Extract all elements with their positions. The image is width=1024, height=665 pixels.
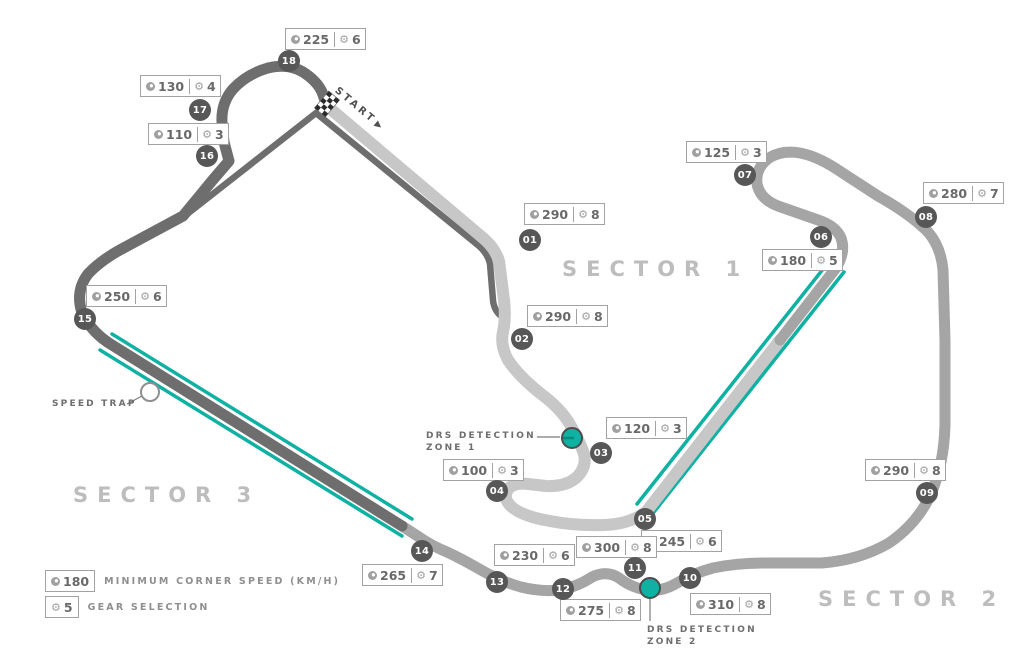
corner-number: 09 xyxy=(920,488,935,499)
corner-speed-cell: 310 xyxy=(691,597,739,612)
corner-gear-cell: ⚙ 7 xyxy=(972,186,1003,201)
gear-icon: ⚙ xyxy=(740,147,750,158)
corner-speed-cell: 230 xyxy=(495,548,543,563)
gear-icon: ⚙ xyxy=(695,536,705,547)
speed-gauge-icon xyxy=(582,543,591,552)
speed-gauge-icon xyxy=(530,210,539,219)
corner-gear-value: 8 xyxy=(591,207,600,222)
corner-gear-cell: ⚙ 6 xyxy=(543,548,574,563)
corner-badge: 05 xyxy=(634,508,656,530)
corner-speed-value: 125 xyxy=(704,145,730,160)
corner-number: 12 xyxy=(556,584,571,595)
corner-speed-value: 225 xyxy=(303,32,329,47)
corner-number: 07 xyxy=(738,170,753,181)
corner-speed-cell: 290 xyxy=(528,309,576,324)
corner-info-box: 100 ⚙ 3 xyxy=(443,459,524,481)
corner-gear-cell: ⚙ 3 xyxy=(492,463,523,478)
corner-gear-value: 3 xyxy=(215,127,224,142)
corner-badge: 02 xyxy=(511,328,533,350)
corner-gear-cell: ⚙ 3 xyxy=(197,127,228,142)
corner-speed-cell: 300 xyxy=(577,540,625,555)
corner-badge: 07 xyxy=(734,164,756,186)
corner-info-box: 300 ⚙ 8 xyxy=(576,536,657,558)
corner-speed-value: 300 xyxy=(594,540,620,555)
legend-speed-text: MINIMUM CORNER SPEED (KM/H) xyxy=(104,576,340,587)
corner-speed-cell: 250 xyxy=(87,289,135,304)
corner-speed-cell: 100 xyxy=(444,463,492,478)
corner-gear-value: 6 xyxy=(352,32,361,47)
speed-gauge-icon xyxy=(154,130,163,139)
corner-speed-cell: 180 xyxy=(763,253,811,268)
corner-badge: 16 xyxy=(196,145,218,167)
corner-gear-value: 6 xyxy=(153,289,162,304)
speed-gauge-icon xyxy=(291,35,300,44)
corner-speed-value: 100 xyxy=(461,463,487,478)
corner-gear-value: 8 xyxy=(757,597,766,612)
corner-gear-value: 8 xyxy=(643,540,652,555)
gear-icon: ⚙ xyxy=(660,423,670,434)
corner-info-box: 125 ⚙ 3 xyxy=(686,141,767,163)
legend-gear-text: GEAR SELECTION xyxy=(88,602,210,613)
corner-gear-value: 3 xyxy=(673,421,682,436)
corner-gear-value: 4 xyxy=(207,79,216,94)
legend-speed-row: 180 MINIMUM CORNER SPEED (KM/H) xyxy=(45,570,340,592)
corner-speed-value: 290 xyxy=(883,463,909,478)
corner-number: 02 xyxy=(515,334,530,345)
corner-number: 04 xyxy=(490,486,505,497)
gear-icon: ⚙ xyxy=(497,465,507,476)
corner-badge: 03 xyxy=(590,442,612,464)
speed-gauge-icon xyxy=(612,424,621,433)
corner-speed-value: 290 xyxy=(545,309,571,324)
legend-gear-value: 5 xyxy=(64,600,73,615)
corner-badge: 08 xyxy=(915,206,937,228)
corner-badge: 13 xyxy=(486,571,508,593)
speed-gauge-icon xyxy=(92,292,101,301)
gear-icon: ⚙ xyxy=(581,311,591,322)
corner-speed-cell: 110 xyxy=(149,127,197,142)
corner-speed-cell: 130 xyxy=(141,79,189,94)
corner-gear-cell: ⚙ 8 xyxy=(576,309,607,324)
corner-speed-value: 250 xyxy=(104,289,130,304)
gear-icon: ⚙ xyxy=(614,605,624,616)
corner-speed-value: 245 xyxy=(659,534,685,549)
circuit-map: START▶ SECTOR 1 SECTOR 2 SECTOR 3 SPEED … xyxy=(0,0,1024,665)
corner-gear-cell: ⚙ 6 xyxy=(690,534,721,549)
legend: 180 MINIMUM CORNER SPEED (KM/H) ⚙ 5 GEAR… xyxy=(45,570,340,618)
corner-info-box: 110 ⚙ 3 xyxy=(148,123,229,145)
speed-gauge-icon xyxy=(146,82,155,91)
corner-speed-value: 275 xyxy=(578,603,604,618)
corner-speed-value: 120 xyxy=(624,421,650,436)
gear-icon: ⚙ xyxy=(202,129,212,140)
gear-icon: ⚙ xyxy=(977,188,987,199)
gear-icon: ⚙ xyxy=(744,599,754,610)
gear-icon: ⚙ xyxy=(339,34,349,45)
corner-speed-value: 290 xyxy=(542,207,568,222)
corner-speed-cell: 125 xyxy=(687,145,735,160)
speed-gauge-icon xyxy=(696,600,705,609)
corner-speed-value: 130 xyxy=(158,79,184,94)
speed-gauge-icon xyxy=(566,606,575,615)
corner-info-box: 120 ⚙ 3 xyxy=(606,417,687,439)
corner-badge: 11 xyxy=(624,557,646,579)
corner-number: 17 xyxy=(193,105,208,116)
corner-badge: 15 xyxy=(74,308,96,330)
corner-gear-cell: ⚙ 8 xyxy=(573,207,604,222)
corner-speed-value: 180 xyxy=(780,253,806,268)
corner-speed-cell: 265 xyxy=(363,568,411,583)
gear-icon: ⚙ xyxy=(51,602,61,613)
corner-gear-value: 7 xyxy=(990,186,999,201)
gear-icon: ⚙ xyxy=(140,291,150,302)
corner-info-box: 250 ⚙ 6 xyxy=(86,285,167,307)
corner-info-box: 290 ⚙ 8 xyxy=(865,459,946,481)
corner-gear-cell: ⚙ 5 xyxy=(811,253,842,268)
corner-badge: 06 xyxy=(810,226,832,248)
speed-gauge-icon xyxy=(929,189,938,198)
corner-badge: 04 xyxy=(486,480,508,502)
corner-speed-value: 230 xyxy=(512,548,538,563)
gear-icon: ⚙ xyxy=(416,570,426,581)
gear-icon: ⚙ xyxy=(816,255,826,266)
corner-gear-cell: ⚙ 8 xyxy=(625,540,656,555)
corner-markers-layer: 290 ⚙ 8 01 290 ⚙ 8 02 xyxy=(0,0,1024,665)
corner-speed-value: 265 xyxy=(380,568,406,583)
speed-gauge-icon xyxy=(51,577,60,586)
corner-speed-cell: 280 xyxy=(924,186,972,201)
legend-gear-row: ⚙ 5 GEAR SELECTION xyxy=(45,596,340,618)
corner-badge: 17 xyxy=(189,99,211,121)
corner-info-box: 225 ⚙ 6 xyxy=(285,28,366,50)
speed-gauge-icon xyxy=(768,256,777,265)
corner-number: 03 xyxy=(594,448,609,459)
corner-gear-cell: ⚙ 6 xyxy=(135,289,166,304)
corner-info-box: 280 ⚙ 7 xyxy=(923,182,1004,204)
corner-gear-cell: ⚙ 4 xyxy=(189,79,220,94)
corner-badge: 12 xyxy=(552,578,574,600)
corner-badge: 14 xyxy=(411,540,433,562)
legend-speed-value: 180 xyxy=(63,574,89,589)
corner-number: 01 xyxy=(523,235,538,246)
corner-speed-value: 110 xyxy=(166,127,192,142)
corner-gear-value: 8 xyxy=(627,603,636,618)
gear-icon: ⚙ xyxy=(919,465,929,476)
speed-gauge-icon xyxy=(449,466,458,475)
speed-gauge-icon xyxy=(500,551,509,560)
corner-info-box: 180 ⚙ 5 xyxy=(762,249,843,271)
speed-gauge-icon xyxy=(368,571,377,580)
corner-number: 13 xyxy=(490,577,505,588)
corner-gear-cell: ⚙ 6 xyxy=(334,32,365,47)
corner-speed-value: 310 xyxy=(708,597,734,612)
corner-gear-value: 3 xyxy=(510,463,519,478)
corner-speed-value: 280 xyxy=(941,186,967,201)
corner-gear-value: 8 xyxy=(594,309,603,324)
corner-number: 15 xyxy=(78,314,93,325)
corner-number: 18 xyxy=(282,56,297,67)
corner-gear-value: 8 xyxy=(932,463,941,478)
corner-speed-cell: 225 xyxy=(286,32,334,47)
speed-gauge-icon xyxy=(692,148,701,157)
corner-info-box: 230 ⚙ 6 xyxy=(494,544,575,566)
corner-info-box: 265 ⚙ 7 xyxy=(362,564,443,586)
corner-gear-value: 6 xyxy=(561,548,570,563)
gear-icon: ⚙ xyxy=(578,209,588,220)
corner-gear-cell: ⚙ 8 xyxy=(914,463,945,478)
gear-icon: ⚙ xyxy=(548,550,558,561)
corner-number: 10 xyxy=(683,573,698,584)
legend-speed-box: 180 xyxy=(45,570,95,592)
corner-badge: 10 xyxy=(679,567,701,589)
corner-info-box: 290 ⚙ 8 xyxy=(527,305,608,327)
gear-icon: ⚙ xyxy=(194,81,204,92)
corner-info-box: 290 ⚙ 8 xyxy=(524,203,605,225)
corner-speed-cell: 120 xyxy=(607,421,655,436)
corner-number: 05 xyxy=(638,514,653,525)
corner-gear-cell: ⚙ 3 xyxy=(655,421,686,436)
corner-info-box: 275 ⚙ 8 xyxy=(560,599,641,621)
corner-speed-cell: 275 xyxy=(561,603,609,618)
corner-number: 11 xyxy=(628,563,643,574)
corner-info-box: 130 ⚙ 4 xyxy=(140,75,221,97)
corner-number: 14 xyxy=(415,546,430,557)
corner-gear-cell: ⚙ 8 xyxy=(739,597,770,612)
corner-badge: 18 xyxy=(278,50,300,72)
corner-gear-cell: ⚙ 7 xyxy=(411,568,442,583)
corner-gear-value: 5 xyxy=(829,253,838,268)
corner-number: 08 xyxy=(919,212,934,223)
corner-info-box: 310 ⚙ 8 xyxy=(690,593,771,615)
corner-gear-value: 7 xyxy=(429,568,438,583)
corner-badge: 09 xyxy=(916,482,938,504)
corner-gear-cell: ⚙ 3 xyxy=(735,145,766,160)
corner-gear-value: 3 xyxy=(753,145,762,160)
corner-gear-value: 6 xyxy=(708,534,717,549)
speed-gauge-icon xyxy=(533,312,542,321)
legend-gear-box: ⚙ 5 xyxy=(45,596,79,618)
corner-gear-cell: ⚙ 8 xyxy=(609,603,640,618)
corner-speed-cell: 290 xyxy=(525,207,573,222)
corner-number: 16 xyxy=(200,151,215,162)
gear-icon: ⚙ xyxy=(630,542,640,553)
corner-badge: 01 xyxy=(519,229,541,251)
speed-gauge-icon xyxy=(871,466,880,475)
corner-number: 06 xyxy=(814,232,829,243)
corner-speed-cell: 290 xyxy=(866,463,914,478)
